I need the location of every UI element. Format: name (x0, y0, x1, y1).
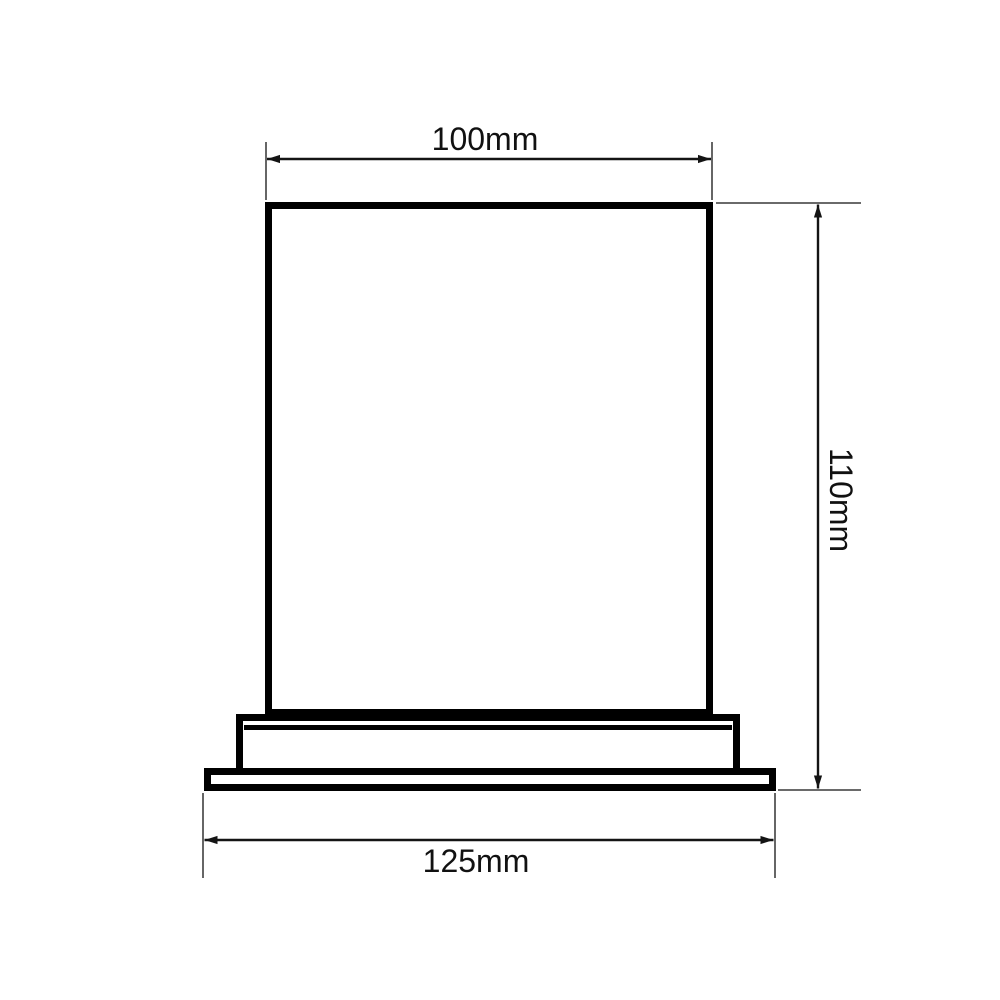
dimension-label-right-height: 110mm (823, 448, 859, 552)
dimension-label-bottom-width: 125mm (423, 843, 530, 879)
dimension-label-top-width: 100mm (432, 121, 539, 157)
base-step-lower-outline (208, 772, 773, 788)
drawing-page: 100mm 110mm 125mm (0, 0, 1000, 1000)
technical-drawing-canvas: 100mm 110mm 125mm (0, 0, 1000, 1000)
main-body-outline (269, 206, 710, 713)
